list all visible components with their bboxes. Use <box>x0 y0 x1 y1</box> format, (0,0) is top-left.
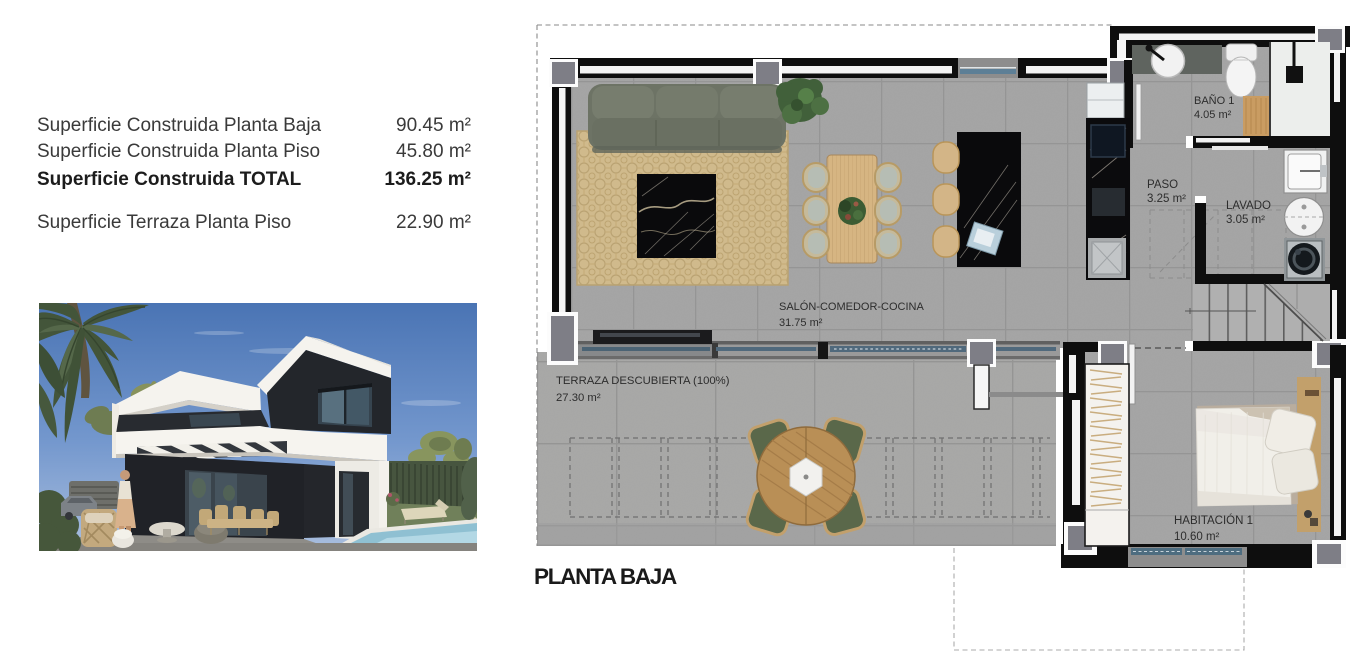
svg-text:BAÑO 1: BAÑO 1 <box>1194 94 1234 107</box>
svg-text:4.05 m²: 4.05 m² <box>1194 109 1232 121</box>
svg-text:PASO: PASO <box>1147 179 1178 191</box>
svg-text:31.75 m²: 31.75 m² <box>779 317 823 329</box>
svg-text:SALÓN-COMEDOR-COCINA: SALÓN-COMEDOR-COCINA <box>779 300 925 313</box>
svg-text:3.05 m²: 3.05 m² <box>1226 214 1265 226</box>
svg-text:HABITACIÓN 1: HABITACIÓN 1 <box>1174 514 1253 527</box>
svg-text:27.30 m²: 27.30 m² <box>556 392 601 404</box>
svg-text:TERRAZA DESCUBIERTA (100%): TERRAZA DESCUBIERTA (100%) <box>556 375 730 387</box>
svg-text:3.25 m²: 3.25 m² <box>1147 193 1186 205</box>
svg-text:10.60 m²: 10.60 m² <box>1174 531 1220 543</box>
svg-text:LAVADO: LAVADO <box>1226 200 1271 212</box>
